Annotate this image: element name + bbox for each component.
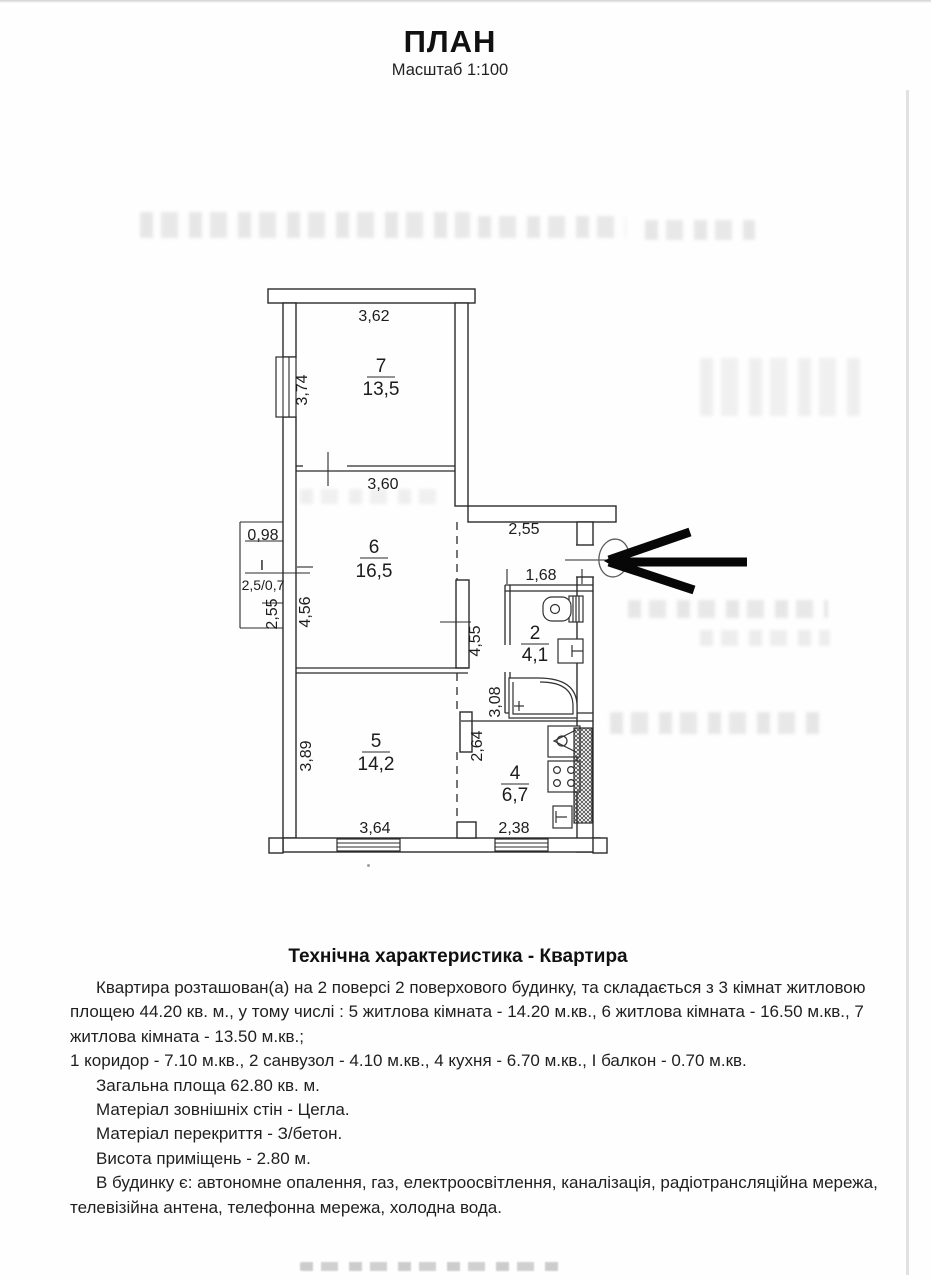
room-label-4: 4 6,7 bbox=[501, 763, 529, 806]
specs-paragraph: Висота приміщень - 2.80 м. bbox=[70, 1147, 882, 1171]
scanned-floor-plan-page: { "page": { "title": "ПЛАН", "scale_labe… bbox=[0, 0, 931, 1280]
dimension-label: 1,68 bbox=[525, 567, 556, 584]
specs-paragraph: Загальна площа 62.80 кв. м. bbox=[70, 1074, 882, 1098]
specs-paragraph: Матеріал зовнішніх стін - Цегла. bbox=[70, 1098, 882, 1122]
room-number: 7 bbox=[376, 356, 387, 377]
dimension-label: 0,98 bbox=[247, 527, 278, 544]
entrance-arrow-annotation bbox=[604, 532, 747, 590]
boiler-icon bbox=[553, 806, 572, 828]
dimension-label: 3,08 bbox=[487, 686, 504, 717]
dimension-label: 2,64 bbox=[469, 730, 486, 761]
room-label-6: 6 16,5 bbox=[356, 537, 393, 582]
room-number: 5 bbox=[371, 731, 382, 752]
specs-paragraph: В будинку є: автономне опалення, газ, ел… bbox=[70, 1171, 882, 1220]
dimension-label: 3,74 bbox=[294, 374, 311, 405]
room-number: І bbox=[260, 557, 264, 574]
dimension-label: 4,56 bbox=[297, 596, 314, 627]
specs-paragraph: Матеріал перекриття - З/бетон. bbox=[70, 1122, 882, 1146]
room-area: 2,5/0,7 bbox=[242, 577, 285, 593]
vent-shaft bbox=[574, 728, 592, 823]
toilet-icon bbox=[543, 596, 583, 622]
room-label-7: 7 13,5 bbox=[363, 356, 400, 400]
bathtub-icon bbox=[509, 678, 577, 718]
room-label-2: 2 4,1 bbox=[521, 623, 549, 666]
kitchen-fixtures bbox=[548, 726, 592, 828]
technical-description: Технічна характеристика - Квартира Кварт… bbox=[70, 946, 882, 1220]
room-area: 4,1 bbox=[522, 645, 548, 666]
specs-heading: Технічна характеристика - Квартира bbox=[70, 946, 846, 968]
windows bbox=[276, 357, 548, 851]
dimension-label: 3,64 bbox=[359, 820, 390, 837]
dimension-label: 3,60 bbox=[367, 476, 398, 493]
room-area: 6,7 bbox=[502, 785, 528, 806]
room-label-balcony: І 2,5/0,7 bbox=[242, 557, 285, 593]
room-area: 14,2 bbox=[358, 754, 395, 775]
room-number: 4 bbox=[510, 763, 521, 784]
dimension-label: 2,38 bbox=[498, 820, 529, 837]
dimension-label: 3,89 bbox=[298, 740, 315, 771]
window bbox=[495, 839, 548, 851]
room-area: 13,5 bbox=[363, 379, 400, 400]
interior-walls bbox=[296, 452, 612, 721]
window bbox=[337, 839, 400, 851]
room-number: 2 bbox=[530, 623, 541, 644]
window bbox=[276, 357, 296, 417]
room-area: 16,5 bbox=[356, 561, 393, 582]
dimension-label: 3,62 bbox=[358, 308, 389, 325]
specs-paragraph: 1 коридор - 7.10 м.кв., 2 санвузол - 4.1… bbox=[70, 1049, 882, 1073]
room-number: 6 bbox=[369, 537, 380, 558]
dimension-label: 2,55 bbox=[264, 598, 281, 629]
dimension-label: 2,55 bbox=[508, 521, 539, 538]
dimension-label: 4,55 bbox=[467, 625, 484, 656]
specs-paragraph: Квартира розташован(а) на 2 поверсі 2 по… bbox=[70, 976, 882, 1049]
room-label-5: 5 14,2 bbox=[358, 731, 395, 775]
washbasin-icon bbox=[558, 639, 583, 663]
